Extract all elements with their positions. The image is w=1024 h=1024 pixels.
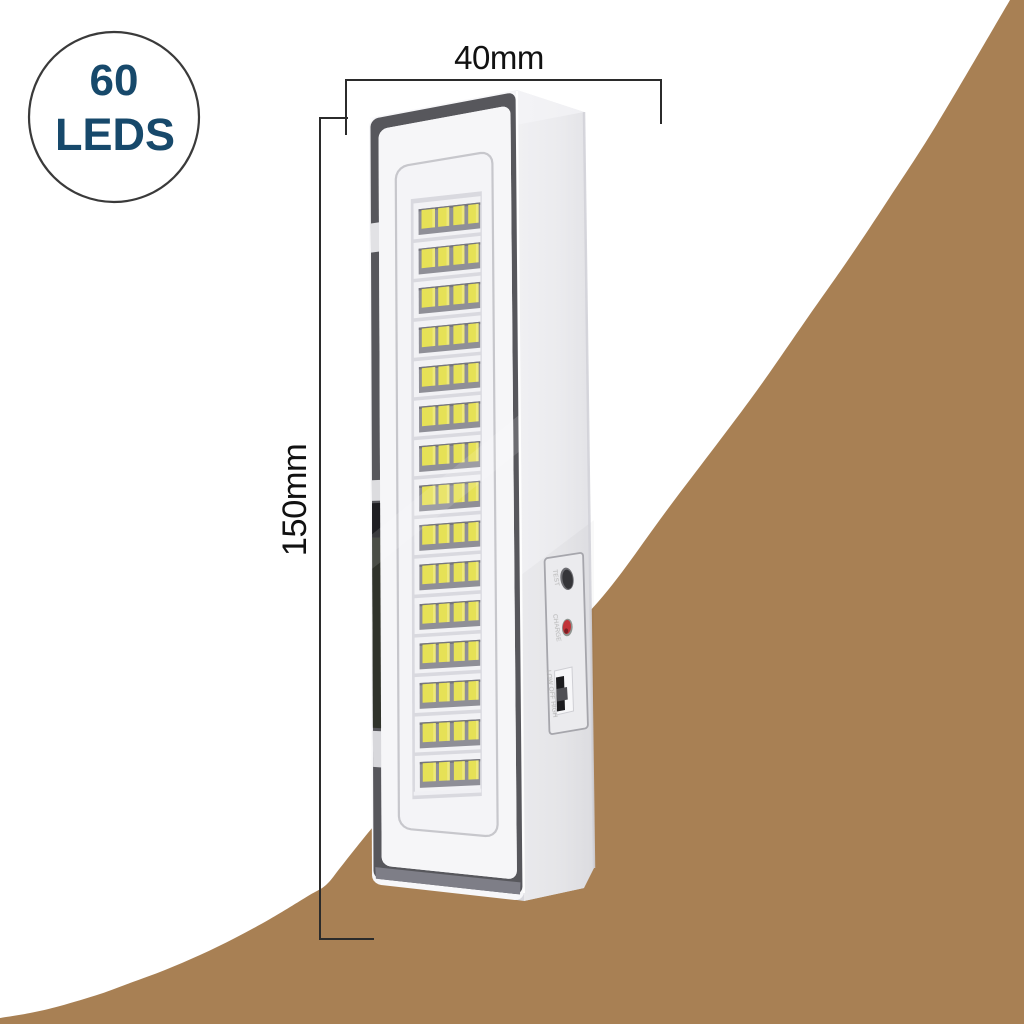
svg-text:60: 60	[90, 56, 139, 105]
svg-text:40mm: 40mm	[454, 39, 544, 76]
svg-text:LEDS: LEDS	[55, 109, 175, 160]
svg-text:150mm: 150mm	[276, 444, 314, 557]
